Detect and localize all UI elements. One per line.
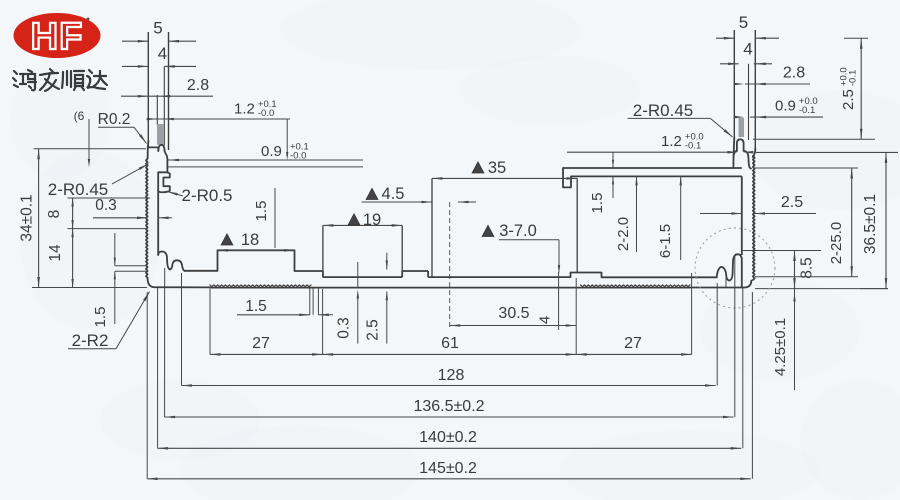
svg-text:18: 18 bbox=[241, 231, 259, 249]
svg-text:5: 5 bbox=[739, 13, 748, 32]
svg-text:2-R0.45: 2-R0.45 bbox=[48, 180, 108, 199]
svg-text:1.5: 1.5 bbox=[92, 307, 109, 328]
svg-text:1.2: 1.2 bbox=[661, 133, 682, 150]
svg-text:0.9: 0.9 bbox=[775, 98, 796, 115]
svg-text:27: 27 bbox=[252, 335, 270, 352]
svg-text:8.5: 8.5 bbox=[799, 257, 816, 279]
svg-text:-0.1: -0.1 bbox=[799, 105, 815, 116]
svg-text:30.5: 30.5 bbox=[498, 305, 529, 322]
svg-text:R0.2: R0.2 bbox=[98, 111, 131, 128]
svg-text:2-R0.5: 2-R0.5 bbox=[181, 186, 232, 205]
svg-text:35: 35 bbox=[488, 159, 506, 177]
svg-text:-0.1: -0.1 bbox=[685, 141, 701, 152]
svg-text:128: 128 bbox=[438, 367, 465, 384]
svg-text:36.5±0.1: 36.5±0.1 bbox=[862, 194, 879, 254]
svg-text:HF: HF bbox=[31, 16, 84, 58]
svg-text:2.8: 2.8 bbox=[783, 65, 805, 82]
svg-text:140±0.2: 140±0.2 bbox=[419, 429, 477, 446]
svg-text:2-2.0: 2-2.0 bbox=[615, 217, 632, 251]
svg-text:0.3: 0.3 bbox=[336, 317, 353, 339]
svg-text:27: 27 bbox=[624, 335, 642, 352]
svg-text:14: 14 bbox=[47, 244, 64, 262]
svg-text:2-R2: 2-R2 bbox=[72, 331, 109, 350]
svg-text:0.9: 0.9 bbox=[261, 143, 282, 160]
svg-text:4.5: 4.5 bbox=[382, 185, 405, 203]
svg-text:2.8: 2.8 bbox=[187, 77, 209, 94]
svg-text:145±0.2: 145±0.2 bbox=[419, 460, 477, 477]
svg-text:1.5: 1.5 bbox=[253, 201, 270, 222]
svg-text:6-1.5: 6-1.5 bbox=[657, 224, 674, 258]
svg-text:8: 8 bbox=[46, 210, 63, 219]
svg-text:136.5±0.2: 136.5±0.2 bbox=[413, 398, 484, 415]
svg-text:4.25±0.1: 4.25±0.1 bbox=[772, 318, 789, 376]
svg-text:4: 4 bbox=[743, 40, 752, 59]
svg-text:-0.1: -0.1 bbox=[848, 70, 859, 86]
svg-text:61: 61 bbox=[441, 335, 459, 352]
svg-text:5: 5 bbox=[153, 19, 162, 38]
svg-text:2.5: 2.5 bbox=[365, 319, 382, 341]
svg-text:-0.0: -0.0 bbox=[290, 151, 306, 162]
svg-text:1.5: 1.5 bbox=[589, 193, 606, 214]
svg-text:19: 19 bbox=[363, 211, 381, 229]
svg-text:4: 4 bbox=[537, 316, 554, 324]
svg-text:34±0.1: 34±0.1 bbox=[19, 194, 36, 241]
svg-text:1.2: 1.2 bbox=[234, 101, 255, 118]
svg-text:-0.0: -0.0 bbox=[258, 108, 274, 119]
svg-text:4: 4 bbox=[158, 44, 167, 63]
svg-text:2.5: 2.5 bbox=[840, 89, 857, 110]
svg-text:3-7.0: 3-7.0 bbox=[499, 222, 537, 240]
svg-text:1.5: 1.5 bbox=[245, 298, 267, 315]
svg-text:2-25.0: 2-25.0 bbox=[828, 222, 845, 265]
svg-text:(6: (6 bbox=[74, 109, 85, 123]
svg-text:2-R0.45: 2-R0.45 bbox=[633, 101, 693, 120]
svg-text:2.5: 2.5 bbox=[781, 194, 803, 211]
svg-text:0.3: 0.3 bbox=[95, 197, 117, 214]
